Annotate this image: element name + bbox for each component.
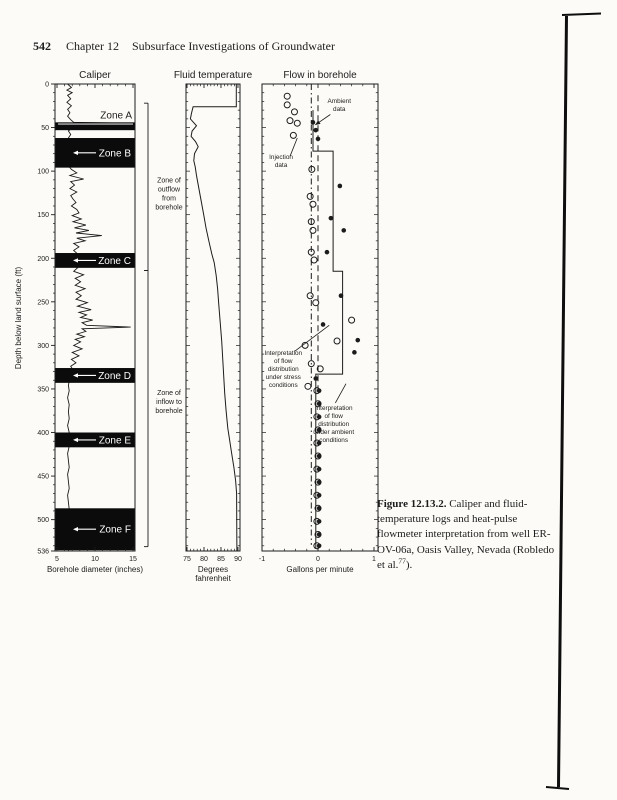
flow-annotation: distribution bbox=[318, 421, 349, 428]
flow-annotation: conditions bbox=[269, 382, 298, 389]
injection-data-point bbox=[307, 193, 313, 199]
injection-data-point bbox=[305, 383, 311, 389]
injection-data-point bbox=[311, 257, 317, 263]
svg-text:50: 50 bbox=[41, 125, 49, 132]
depth-axis-label: Depth below land surface (ft) bbox=[14, 267, 23, 370]
flow-annotation: Injection bbox=[269, 154, 293, 161]
injection-data-point bbox=[334, 338, 340, 344]
flow-x-axis-label: Gallons per minute bbox=[286, 565, 354, 574]
injection-data-point bbox=[349, 317, 355, 323]
svg-text:400: 400 bbox=[37, 430, 49, 437]
figure-caption: Figure 12.13.2. Caliper and fluid-temper… bbox=[377, 497, 555, 573]
injection-data-point bbox=[294, 120, 300, 126]
fluid-temperature-plot: Fluid temperature75808590Degreesfahrenhe… bbox=[174, 70, 253, 583]
svg-text:15: 15 bbox=[129, 556, 137, 563]
flow-zone-bracket-label: inflow to bbox=[156, 399, 182, 406]
caliper-x-axis-label: Borehole diameter (inches) bbox=[47, 565, 143, 574]
flow-zone-bracket-label: borehole bbox=[155, 204, 182, 211]
flow-zone-bracket-label: from bbox=[162, 195, 176, 202]
ambient-data-point bbox=[352, 350, 357, 355]
injection-data-point bbox=[291, 109, 297, 115]
injection-data-point bbox=[307, 293, 313, 299]
zone-label: Zone C bbox=[98, 256, 131, 267]
injection-data-point bbox=[309, 166, 315, 172]
scan-binding-artifact bbox=[546, 14, 601, 790]
injection-data-point bbox=[290, 132, 296, 138]
flow-title: Flow in borehole bbox=[283, 70, 357, 81]
flow-annotation: under ambient bbox=[313, 429, 354, 436]
temperature-x-axis-label: Degrees bbox=[198, 565, 228, 574]
ambient-data-point bbox=[329, 216, 334, 221]
svg-text:450: 450 bbox=[37, 474, 49, 481]
ambient-data-point bbox=[321, 322, 326, 327]
ambient-data-point bbox=[316, 137, 321, 142]
flow-annotation: of flow bbox=[274, 358, 293, 365]
zone-label: Zone B bbox=[99, 148, 132, 159]
svg-text:-1: -1 bbox=[259, 556, 265, 563]
flow-annotation: of flow bbox=[324, 413, 343, 420]
figure-caption-close: ). bbox=[406, 559, 412, 571]
injection-data-point bbox=[310, 201, 316, 207]
injection-data-point bbox=[310, 227, 316, 233]
annotation-pointer bbox=[294, 325, 329, 351]
svg-text:150: 150 bbox=[37, 212, 49, 219]
flow-annotation: Interpretation bbox=[315, 405, 353, 412]
flow-annotation: under stress bbox=[266, 374, 301, 381]
ambient-data-point bbox=[313, 376, 318, 381]
flow-zone-bracket-label: Zone of bbox=[157, 390, 181, 397]
temperature-trace bbox=[190, 84, 237, 551]
svg-text:10: 10 bbox=[91, 556, 99, 563]
flow-in-borehole-plot: Flow in borehole-101Gallons per minuteAm… bbox=[259, 70, 378, 574]
flow-zone-bracket-label: borehole bbox=[155, 408, 182, 415]
flow-annotation: distribution bbox=[268, 366, 299, 373]
svg-text:300: 300 bbox=[37, 343, 49, 350]
flow-annotation: Ambient bbox=[328, 98, 352, 105]
temperature-x-axis-label: fahrenheit bbox=[195, 574, 231, 583]
injection-data-point bbox=[287, 118, 293, 124]
injection-data-point bbox=[313, 300, 319, 306]
flow-annotation: data bbox=[333, 106, 346, 113]
flow-zone-bracket-label: Zone of bbox=[157, 177, 181, 184]
ambient-data-point bbox=[341, 228, 346, 233]
injection-data-point bbox=[284, 93, 290, 99]
injection-data-point bbox=[284, 102, 290, 108]
figure-caption-superscript: 77 bbox=[398, 556, 406, 565]
svg-text:250: 250 bbox=[37, 299, 49, 306]
ambient-data-point bbox=[338, 184, 343, 189]
flow-zone-bracket-label: outflow bbox=[158, 186, 181, 193]
svg-text:350: 350 bbox=[37, 386, 49, 393]
flow-annotation: Interpretation bbox=[264, 350, 302, 357]
svg-text:1: 1 bbox=[372, 556, 376, 563]
book-page: 542Chapter 12Subsurface Investigations o… bbox=[0, 0, 617, 800]
caliper-plot: CaliperZone AZone BZone CZone DZone EZon… bbox=[14, 70, 183, 574]
svg-text:0: 0 bbox=[316, 556, 320, 563]
flow-annotation: data bbox=[275, 162, 288, 169]
svg-text:75: 75 bbox=[183, 556, 191, 563]
svg-text:100: 100 bbox=[37, 169, 49, 176]
figure-12-13-2-logs: CaliperZone AZone BZone CZone DZone EZon… bbox=[0, 0, 617, 800]
annotation-pointer bbox=[290, 138, 297, 156]
svg-text:80: 80 bbox=[200, 556, 208, 563]
annotation-pointer bbox=[335, 384, 346, 403]
zone-label: Zone D bbox=[98, 371, 131, 382]
svg-text:85: 85 bbox=[217, 556, 225, 563]
svg-text:0: 0 bbox=[45, 82, 49, 89]
ambient-data-point bbox=[339, 293, 344, 298]
svg-text:536: 536 bbox=[37, 549, 49, 556]
fluid-temperature-title: Fluid temperature bbox=[174, 70, 253, 81]
figure-caption-label: Figure 12.13.2. bbox=[377, 498, 446, 510]
svg-text:5: 5 bbox=[55, 556, 59, 563]
zone-label: Zone E bbox=[99, 435, 132, 446]
ambient-data-point bbox=[355, 338, 360, 343]
svg-text:200: 200 bbox=[37, 256, 49, 263]
ambient-data-point bbox=[325, 250, 330, 255]
caliper-title: Caliper bbox=[79, 70, 111, 81]
zone-label: Zone A bbox=[100, 110, 132, 121]
ambient-data-point bbox=[313, 128, 318, 133]
svg-text:500: 500 bbox=[37, 517, 49, 524]
svg-text:90: 90 bbox=[234, 556, 242, 563]
ambient-data-point bbox=[311, 120, 316, 125]
flow-annotation: conditions bbox=[319, 437, 348, 444]
zone-label: Zone F bbox=[99, 525, 131, 536]
